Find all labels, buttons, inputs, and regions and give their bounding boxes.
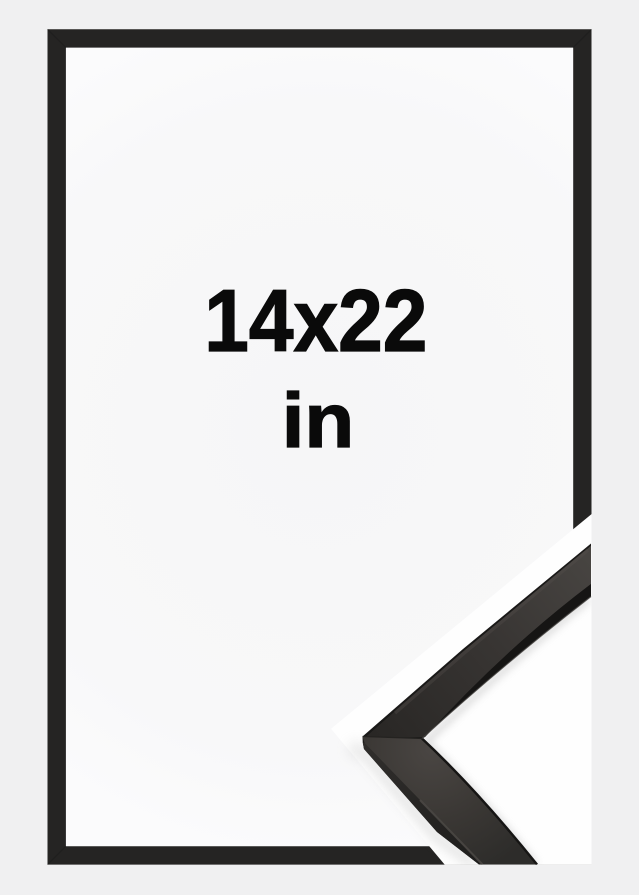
svg-text:in: in	[282, 377, 355, 463]
svg-text:14x22: 14x22	[204, 271, 427, 369]
